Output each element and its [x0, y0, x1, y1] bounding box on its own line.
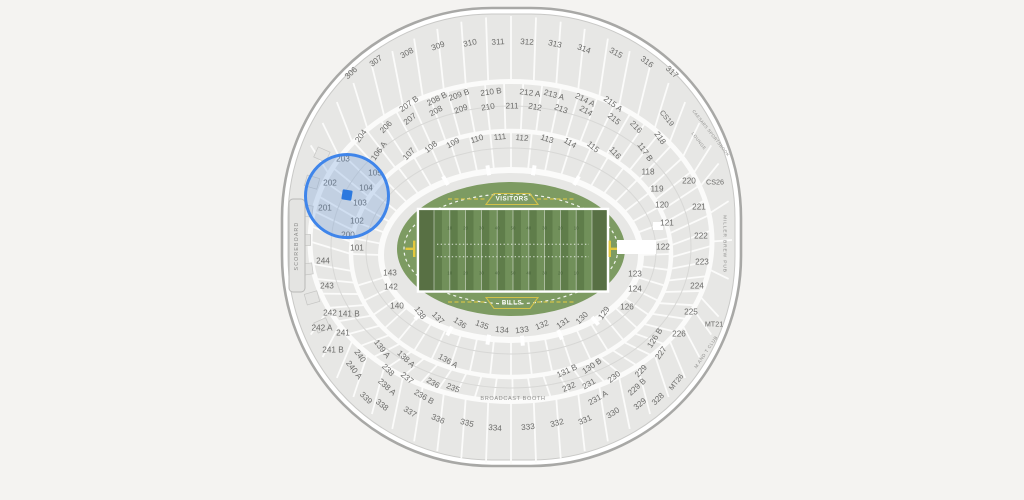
yard-number: 40	[495, 226, 500, 231]
section-334[interactable]: 334	[488, 423, 503, 433]
section-225[interactable]: 225	[684, 308, 698, 317]
scoreboard-box	[289, 199, 305, 292]
yard-stripe	[505, 210, 513, 290]
selected-seat-marker[interactable]	[341, 189, 352, 200]
section-244[interactable]: 244	[316, 257, 330, 266]
yard-stripe	[584, 210, 592, 290]
yard-stripe	[568, 210, 576, 290]
yard-stripe	[450, 210, 458, 290]
section-140[interactable]: 140	[390, 302, 404, 311]
club-seats-block	[617, 240, 656, 254]
section-226[interactable]: 226	[672, 330, 686, 339]
section-118[interactable]: 118	[641, 168, 654, 177]
yard-number: 30	[542, 271, 547, 276]
stadium-svg: 1020304050403020101020304050403020103063…	[0, 0, 1024, 500]
section-242[interactable]: 242	[323, 309, 337, 318]
section-CS26[interactable]: CS26	[706, 178, 724, 187]
section-123[interactable]: 123	[628, 270, 642, 279]
yard-stripe	[537, 210, 545, 290]
yard-number: 20	[558, 271, 563, 276]
section-101[interactable]: 101	[350, 244, 364, 253]
section-211[interactable]: 211	[505, 101, 519, 110]
section-112[interactable]: 112	[515, 133, 529, 143]
section-224[interactable]: 224	[690, 282, 704, 291]
section-221[interactable]: 221	[692, 203, 706, 212]
yard-number: 20	[558, 226, 563, 231]
yard-stripe	[497, 210, 505, 290]
section-142[interactable]: 142	[384, 283, 398, 292]
yard-stripe	[560, 210, 568, 290]
section-126[interactable]: 126	[620, 303, 634, 312]
goalpost-left	[406, 248, 415, 250]
yard-stripe	[458, 210, 466, 290]
yard-number: 20	[463, 271, 468, 276]
yard-number: 10	[447, 271, 452, 276]
yard-number: 30	[479, 271, 484, 276]
goalpost-left	[413, 241, 415, 257]
section-242A[interactable]: 242 A	[312, 324, 333, 333]
yard-stripe	[434, 210, 442, 290]
yard-number: 10	[574, 226, 579, 231]
section-243[interactable]: 243	[320, 282, 334, 291]
section-143[interactable]: 143	[383, 269, 397, 278]
yard-number: 10	[447, 226, 452, 231]
yard-stripe	[481, 210, 489, 290]
section-241B[interactable]: 241 B	[322, 346, 344, 355]
section-141B[interactable]: 141 B	[338, 310, 360, 319]
section-MT21[interactable]: MT21	[705, 320, 723, 329]
yard-number: 40	[526, 271, 531, 276]
yard-stripe	[474, 210, 482, 290]
football-field: 102030405040302010102030405040302010	[397, 182, 625, 316]
yard-stripe	[489, 210, 497, 290]
yard-stripe	[513, 210, 521, 290]
section-333[interactable]: 333	[521, 422, 536, 432]
yard-number: 10	[574, 271, 579, 276]
yard-number: 20	[463, 226, 468, 231]
seating-map: 1020304050403020101020304050403020103063…	[0, 0, 1024, 500]
section-220[interactable]: 220	[682, 177, 696, 186]
endzone-left	[419, 210, 434, 290]
section-120[interactable]: 120	[655, 201, 669, 210]
yard-stripe	[545, 210, 553, 290]
section-111[interactable]: 111	[493, 132, 507, 142]
section-124[interactable]: 124	[628, 285, 642, 294]
section-223[interactable]: 223	[695, 258, 709, 267]
yard-stripe	[529, 210, 537, 290]
yard-number: 40	[495, 271, 500, 276]
section-241[interactable]: 241	[336, 329, 350, 338]
yard-number: 40	[526, 226, 531, 231]
section-122[interactable]: 122	[656, 243, 670, 252]
section-222[interactable]: 222	[694, 232, 708, 241]
section-134[interactable]: 134	[495, 325, 510, 335]
section-133[interactable]: 133	[515, 325, 530, 336]
goalpost-right	[609, 241, 611, 257]
yard-stripe	[553, 210, 561, 290]
section-311[interactable]: 311	[491, 37, 505, 47]
yard-number: 50	[511, 271, 516, 276]
yard-stripe	[466, 210, 474, 290]
section-121[interactable]: 121	[660, 219, 674, 228]
yard-stripe	[442, 210, 450, 290]
yard-number: 30	[479, 226, 484, 231]
section-312[interactable]: 312	[520, 37, 535, 47]
yard-stripe	[521, 210, 529, 290]
yard-stripe	[576, 210, 584, 290]
yard-number: 30	[542, 226, 547, 231]
aisle	[663, 291, 702, 292]
endzone-right	[592, 210, 607, 290]
yard-number: 50	[511, 226, 516, 231]
section-119[interactable]: 119	[650, 185, 663, 194]
